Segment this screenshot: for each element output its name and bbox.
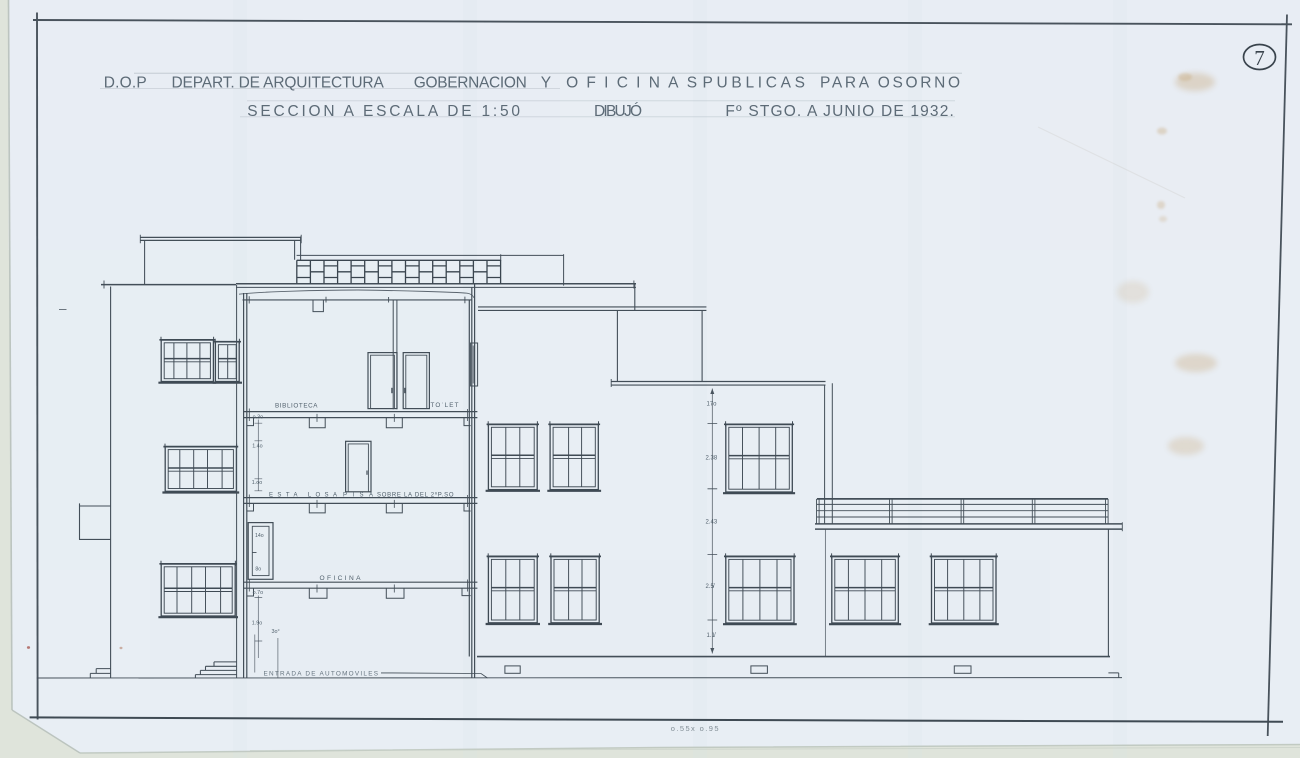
svg-text:DEPART. DE ARQUITECTURA: DEPART. DE ARQUITECTURA xyxy=(172,75,385,92)
svg-text:3o°: 3o° xyxy=(272,629,280,635)
svg-text:1.oo: 1.oo xyxy=(252,480,262,486)
svg-text:ENTRADA DE AUTOMOVILES: ENTRADA DE AUTOMOVILES xyxy=(264,671,379,678)
svg-text:1.9o: 1.9o xyxy=(252,621,262,627)
svg-text:7: 7 xyxy=(1254,46,1265,70)
svg-text:1.1̸: 1.1̸ xyxy=(707,633,716,639)
svg-text:o.3o: o.3o xyxy=(253,415,264,421)
svg-text:DIBUJÓ: DIBUJÓ xyxy=(594,103,642,120)
svg-text:TOˈLET: TOˈLET xyxy=(431,401,459,409)
svg-text:14o: 14o xyxy=(255,533,264,539)
svg-text:D.O.P: D.O.P xyxy=(104,75,147,92)
svg-text:o.7o: o.7o xyxy=(253,590,264,596)
svg-text:2.5̸: 2.5̸ xyxy=(706,584,715,590)
svg-text:PUBLICAS: PUBLICAS xyxy=(703,75,806,92)
svg-text:BIBLIOTECA: BIBLIOTECA xyxy=(275,402,318,409)
svg-text:Y: Y xyxy=(541,75,551,92)
svg-text:17o: 17o xyxy=(707,402,718,408)
svg-text:Fº STGO. A JUNIO DE 1932.: Fº STGO. A JUNIO DE 1932. xyxy=(725,103,953,120)
svg-text:8o: 8o xyxy=(255,567,261,573)
svg-text:o.55x o.95: o.55x o.95 xyxy=(671,724,719,733)
svg-text:1.4o: 1.4o xyxy=(252,444,263,450)
svg-text:2.43: 2.43 xyxy=(706,520,718,526)
svg-text:2.38: 2.38 xyxy=(706,456,718,462)
svg-text:GOBERNACION: GOBERNACION xyxy=(414,75,527,92)
